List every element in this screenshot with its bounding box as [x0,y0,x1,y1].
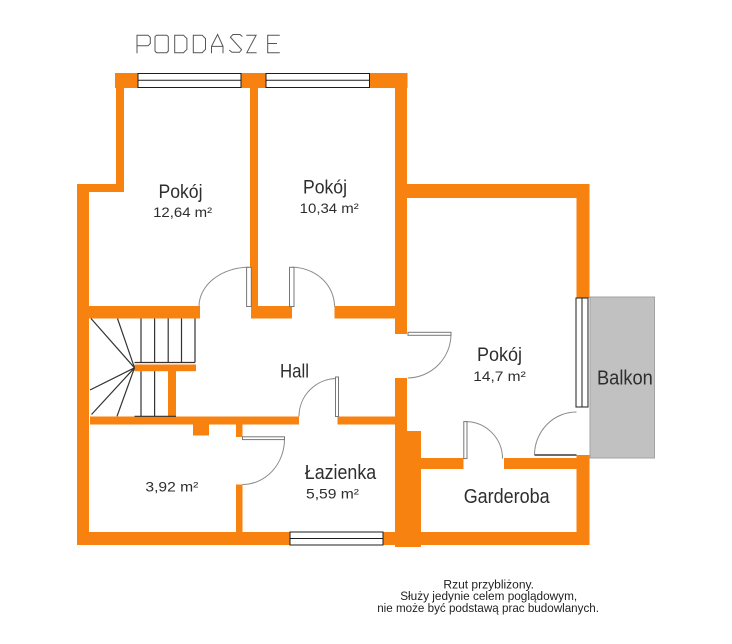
svg-text:Pokój: Pokój [159,182,203,203]
svg-text:Łazienka: Łazienka [305,462,377,484]
svg-text:Pokój: Pokój [477,345,522,366]
svg-text:10,34 m²: 10,34 m² [300,201,360,216]
svg-text:14,7 m²: 14,7 m² [473,369,526,384]
svg-text:5,59 m²: 5,59 m² [306,487,360,502]
svg-text:Balkon: Balkon [597,368,653,390]
svg-text:12,64 m²: 12,64 m² [153,205,213,220]
svg-text:Garderoba: Garderoba [464,486,551,508]
svg-text:3,92 m²: 3,92 m² [145,480,199,495]
svg-text:Pokój: Pokój [303,178,347,199]
svg-text:Hall: Hall [280,361,309,382]
svg-text:nie może być podstawą prac bud: nie może być podstawą prac budowlanych. [377,601,599,615]
